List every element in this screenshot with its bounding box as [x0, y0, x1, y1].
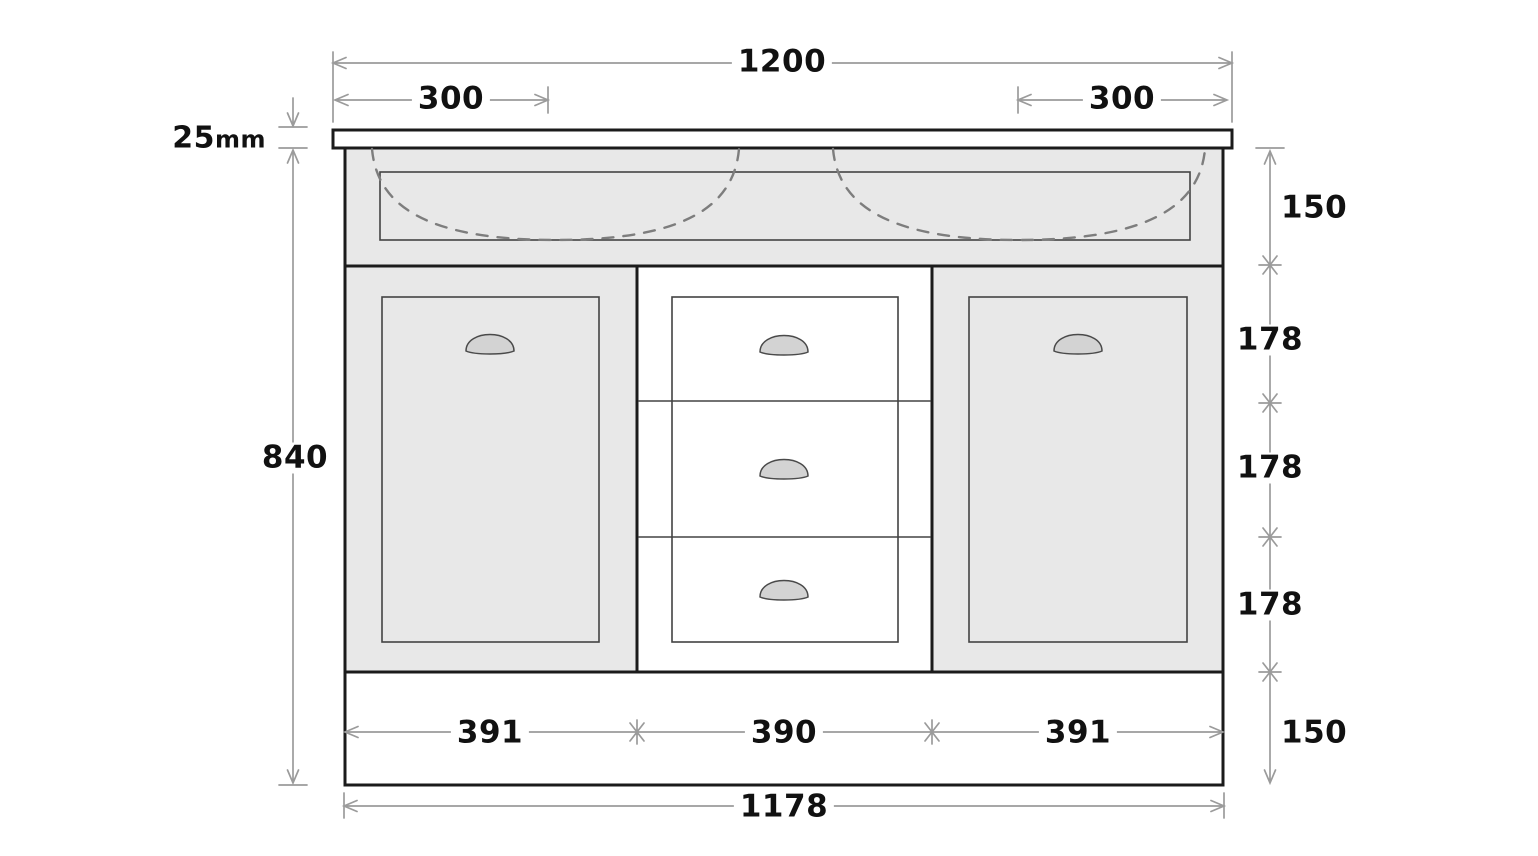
- label-cabinet-height: 840: [256, 443, 334, 474]
- label-plinth-height: 150: [1281, 718, 1347, 749]
- label-drawer-bank-width: 390: [745, 718, 823, 749]
- label-carcass-width: 1178: [734, 792, 834, 823]
- left-door: [346, 266, 637, 672]
- label-overall-width: 1200: [732, 47, 832, 78]
- label-countertop-thickness-value: 25: [172, 121, 215, 156]
- dim-countertop-thickness: [288, 98, 299, 126]
- label-right-door-width: 391: [1039, 718, 1117, 749]
- label-sink-right-offset: 300: [1083, 84, 1161, 115]
- label-top-drawer-height: 178: [1231, 325, 1309, 356]
- label-bottom-drawer-height: 178: [1231, 590, 1309, 621]
- label-sink-left-offset: 300: [412, 84, 490, 115]
- countertop: [333, 130, 1232, 148]
- label-countertop-thickness-unit: mm: [215, 126, 266, 154]
- label-countertop-thickness: 25mm: [172, 123, 266, 154]
- label-middle-drawer-height: 178: [1231, 453, 1309, 484]
- vanity-dimension-drawing: 1200 300 300 25mm 840 150 178 178 178 15…: [0, 0, 1538, 856]
- label-apron-height: 150: [1281, 193, 1347, 224]
- label-left-door-width: 391: [451, 718, 529, 749]
- sink-apron-panel: [346, 149, 1222, 266]
- right-door: [932, 266, 1222, 672]
